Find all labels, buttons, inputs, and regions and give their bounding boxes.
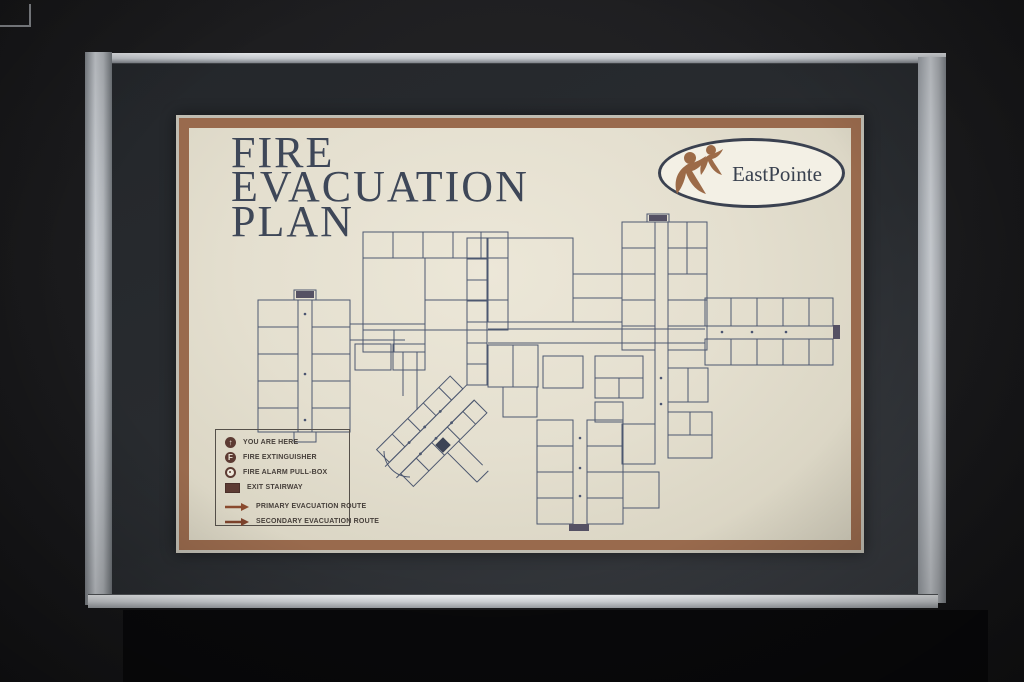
frame-rail-top: [85, 53, 946, 64]
legend-label: EXIT STAIRWAY: [247, 484, 303, 491]
frame-rail-bottom: [88, 594, 938, 608]
fire-alarm-pull-box-icon: [225, 467, 236, 478]
legend-label: FIRE ALARM PULL-BOX: [243, 469, 327, 476]
primary-route-arrow-icon: [225, 503, 249, 511]
you-are-here-icon: ↑: [225, 437, 236, 448]
frame-rail-left: [85, 52, 112, 605]
fire-evacuation-sign: FIRE EVACUATION PLAN EastPointe: [176, 115, 864, 553]
legend-row-exit-stairway: EXIT STAIRWAY: [225, 481, 349, 494]
adjacent-frame-corner: [0, 4, 31, 27]
sign-paper: FIRE EVACUATION PLAN EastPointe: [189, 128, 851, 540]
legend-box: ↑ YOU ARE HERE F FIRE EXTINGUISHER FIRE …: [215, 429, 350, 526]
legend-label: FIRE EXTINGUISHER: [243, 454, 317, 461]
legend-row-secondary-route: SECONDARY EVACUATION ROUTE: [225, 515, 349, 528]
exit-stairway-marks: [296, 215, 840, 531]
legend-row-primary-route: PRIMARY EVACUATION ROUTE: [225, 500, 349, 513]
you-are-here-marker: [435, 437, 451, 453]
legend-row-fire-extinguisher: F FIRE EXTINGUISHER: [225, 451, 349, 464]
legend-label: PRIMARY EVACUATION ROUTE: [256, 503, 366, 510]
fire-extinguisher-icon: F: [225, 452, 236, 463]
secondary-route-arrow-icon: [225, 518, 249, 526]
legend-label: YOU ARE HERE: [243, 439, 298, 446]
exit-stairway-icon: [225, 483, 240, 493]
legend-label: SECONDARY EVACUATION ROUTE: [256, 518, 379, 525]
legend-row-you-are-here: ↑ YOU ARE HERE: [225, 436, 349, 449]
frame-rail-right: [918, 57, 946, 603]
black-counter-shadow: [123, 610, 988, 682]
photo-scene: FIRE EVACUATION PLAN EastPointe: [0, 0, 1024, 682]
legend-row-fire-alarm: FIRE ALARM PULL-BOX: [225, 466, 349, 479]
